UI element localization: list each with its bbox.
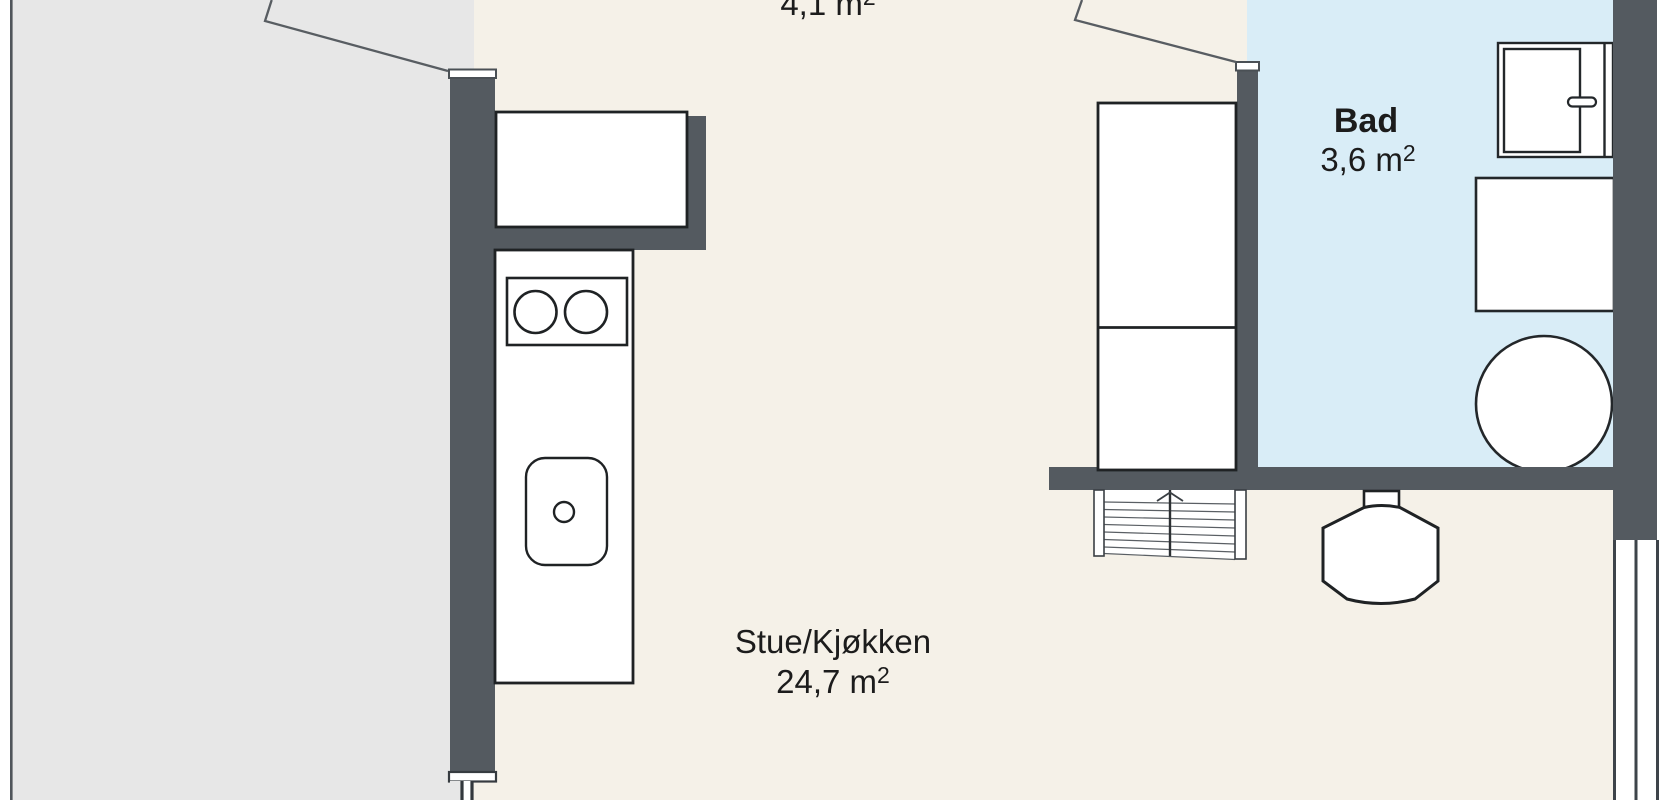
- svg-text:Stue/Kjøkken: Stue/Kjøkken: [735, 623, 931, 660]
- svg-text:Bad: Bad: [1334, 102, 1398, 140]
- svg-text:3,6 m2: 3,6 m2: [1320, 140, 1415, 178]
- svg-text:4,1 m2: 4,1 m2: [780, 0, 875, 22]
- svg-text:24,7 m2: 24,7 m2: [776, 662, 890, 700]
